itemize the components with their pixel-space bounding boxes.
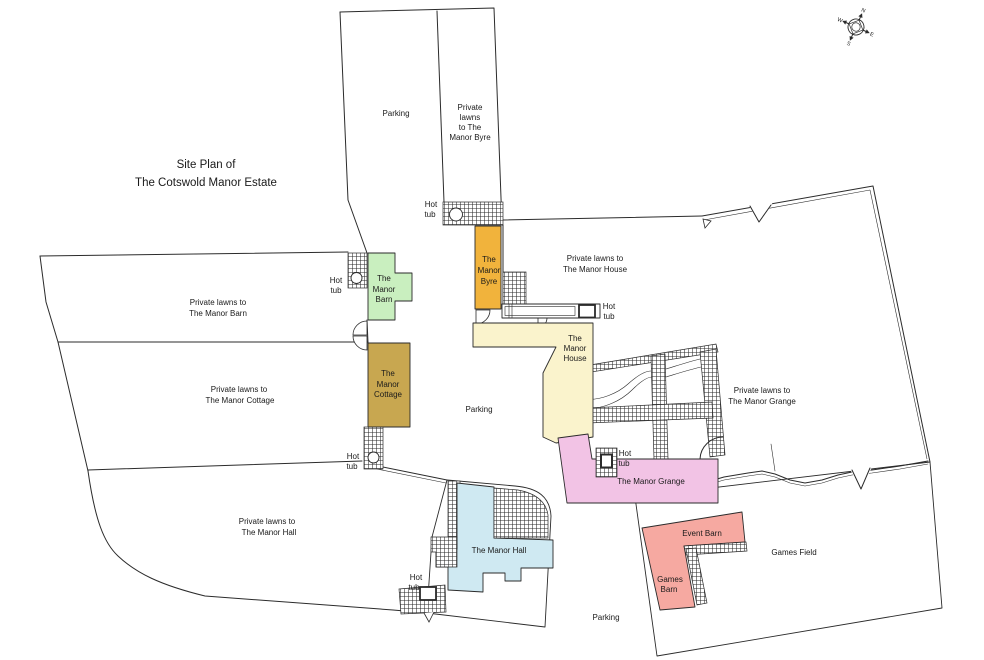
hot-tub-label: tub bbox=[330, 286, 342, 295]
manor-barn-label: The bbox=[377, 274, 391, 283]
manor-house-label: House bbox=[563, 354, 587, 363]
grange-lawns-label: Private lawns to bbox=[734, 386, 791, 395]
garden-bed-line bbox=[666, 367, 701, 377]
left-lawns-south-curve bbox=[88, 471, 428, 613]
cottage-lawns-label: Private lawns to bbox=[211, 385, 268, 394]
house-lawns-label: The Manor House bbox=[563, 265, 628, 274]
compass-north-label: N bbox=[860, 7, 866, 14]
cottage-lawns-label: The Manor Cottage bbox=[206, 396, 275, 405]
manor-grange-label: The Manor Grange bbox=[617, 477, 685, 486]
site-plan: N E S W Site Plan of The Cotswold Manor … bbox=[0, 0, 984, 660]
gate-post-line bbox=[771, 444, 775, 471]
left-lawns-west-edge bbox=[40, 256, 88, 471]
grange-lawns-wall-inner bbox=[704, 190, 927, 459]
manor-byre-label: The bbox=[482, 255, 496, 264]
parking-mid-label: Parking bbox=[465, 405, 492, 414]
hot-tub-label: tub bbox=[346, 462, 358, 471]
parking-lawn-divider bbox=[437, 11, 444, 202]
hot-tub-label: tub bbox=[603, 312, 615, 321]
manor-grange-building bbox=[558, 434, 718, 503]
hot-tub-label: tub bbox=[408, 583, 420, 592]
compass-south-label: S bbox=[845, 41, 851, 48]
parking-top-label: Parking bbox=[382, 109, 409, 118]
site-plan-svg: N E S W Site Plan of The Cotswold Manor … bbox=[0, 0, 984, 660]
manor-hall-label: The Manor Hall bbox=[472, 546, 527, 555]
byre-lawns-label: to The bbox=[459, 123, 482, 132]
compass-east-label: E bbox=[869, 32, 875, 39]
house-lawns-label: Private lawns to bbox=[567, 254, 624, 263]
byre-lawns-label: Manor Byre bbox=[449, 133, 491, 142]
manor-byre-label: Byre bbox=[481, 277, 498, 286]
cottage-hall-divider bbox=[88, 461, 362, 470]
barn-lawns-label: Private lawns to bbox=[190, 298, 247, 307]
hot-tub-byre bbox=[450, 208, 463, 221]
manor-cottage-label: Cottage bbox=[374, 390, 403, 399]
garden-bed-line bbox=[585, 377, 652, 408]
garden-bed-line bbox=[585, 371, 651, 399]
hot-tub-label: Hot bbox=[410, 573, 423, 582]
manor-house-label: The bbox=[568, 334, 582, 343]
hall-lawns-label: Private lawns to bbox=[239, 517, 296, 526]
byre-lawns-label: lawns bbox=[460, 113, 480, 122]
hot-tub-label: Hot bbox=[347, 452, 360, 461]
hot-tub-label: tub bbox=[618, 459, 630, 468]
barn-lawns-label: The Manor Barn bbox=[189, 309, 247, 318]
gate-swing-icon bbox=[353, 321, 367, 335]
compass-circle bbox=[845, 16, 866, 37]
garden-bed-line bbox=[666, 359, 700, 369]
byre-side-terrace bbox=[503, 272, 526, 305]
hot-tub-label: Hot bbox=[330, 276, 343, 285]
manor-cottage-label: Manor bbox=[377, 380, 400, 389]
games-barn-label: Games bbox=[657, 575, 683, 584]
compass-rose: N E S W bbox=[829, 0, 883, 55]
plan-title-line2: The Cotswold Manor Estate bbox=[135, 177, 277, 189]
left-lawns-top-edge bbox=[40, 252, 348, 256]
games-field-label: Games Field bbox=[771, 548, 816, 557]
hot-tub-label: Hot bbox=[603, 302, 616, 311]
manor-barn-label: Manor bbox=[373, 285, 396, 294]
manor-byre-label: Manor bbox=[478, 266, 501, 275]
grange-lawns-wall-outer bbox=[702, 186, 930, 462]
hot-tub-cottage bbox=[368, 452, 379, 463]
hall-gate-icon bbox=[424, 612, 434, 622]
hot-tub-hall bbox=[420, 587, 436, 600]
byre-lawns-label: Private bbox=[458, 103, 483, 112]
driveway-line-outer bbox=[378, 466, 447, 480]
hot-tub-house bbox=[579, 305, 595, 318]
hot-tub-label: Hot bbox=[425, 200, 438, 209]
gate-swing-icon bbox=[353, 336, 367, 350]
parking-bottom-label: Parking bbox=[592, 613, 619, 622]
grange-lawns-label: The Manor Grange bbox=[728, 397, 796, 406]
hot-tub-label: Hot bbox=[619, 449, 632, 458]
manor-house-label: Manor bbox=[564, 344, 587, 353]
door-swing-icon bbox=[476, 310, 490, 324]
formal-garden bbox=[584, 344, 725, 459]
manor-barn-label: Barn bbox=[376, 295, 393, 304]
hot-tub-grange bbox=[601, 455, 612, 468]
hot-tub-barn bbox=[351, 273, 362, 284]
plan-title-line1: Site Plan of bbox=[177, 159, 237, 171]
games-barn-label: Barn bbox=[661, 585, 678, 594]
hall-lawns-label: The Manor Hall bbox=[242, 528, 297, 537]
house-lawns-top-edge bbox=[503, 216, 702, 220]
wall-corner-flag bbox=[703, 219, 711, 228]
event-barn-label: Event Barn bbox=[682, 529, 722, 538]
top-parking-left-edge bbox=[340, 12, 367, 253]
hot-tub-label: tub bbox=[424, 210, 436, 219]
driveway-line-inner bbox=[377, 469, 446, 483]
manor-cottage-label: The bbox=[381, 369, 395, 378]
